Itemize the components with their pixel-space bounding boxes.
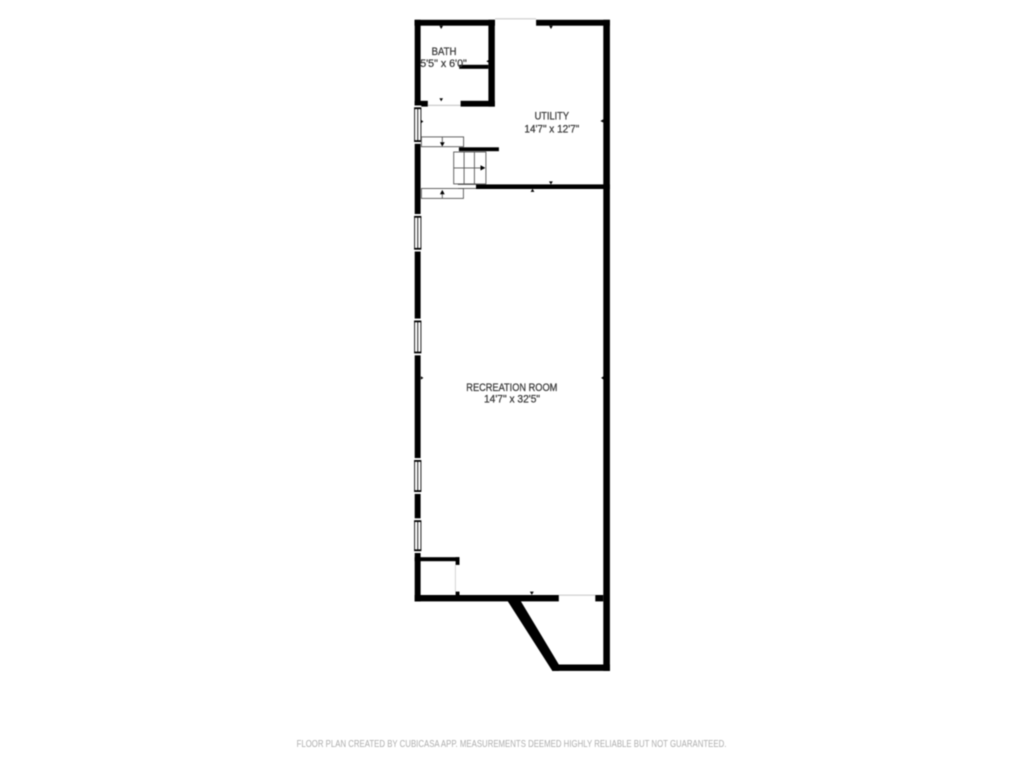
svg-text:UTILITY: UTILITY — [535, 111, 570, 123]
svg-text:FLOOR PLAN CREATED BY CUBICASA: FLOOR PLAN CREATED BY CUBICASA APP. MEAS… — [297, 738, 727, 749]
svg-text:BATH: BATH — [432, 47, 457, 59]
svg-text:RECREATION ROOM: RECREATION ROOM — [466, 382, 557, 394]
svg-text:14'7" x 32'5": 14'7" x 32'5" — [484, 393, 540, 405]
svg-text:14'7" x 12'7": 14'7" x 12'7" — [524, 123, 579, 136]
svg-text:5'5" x 6'0": 5'5" x 6'0" — [420, 58, 467, 70]
